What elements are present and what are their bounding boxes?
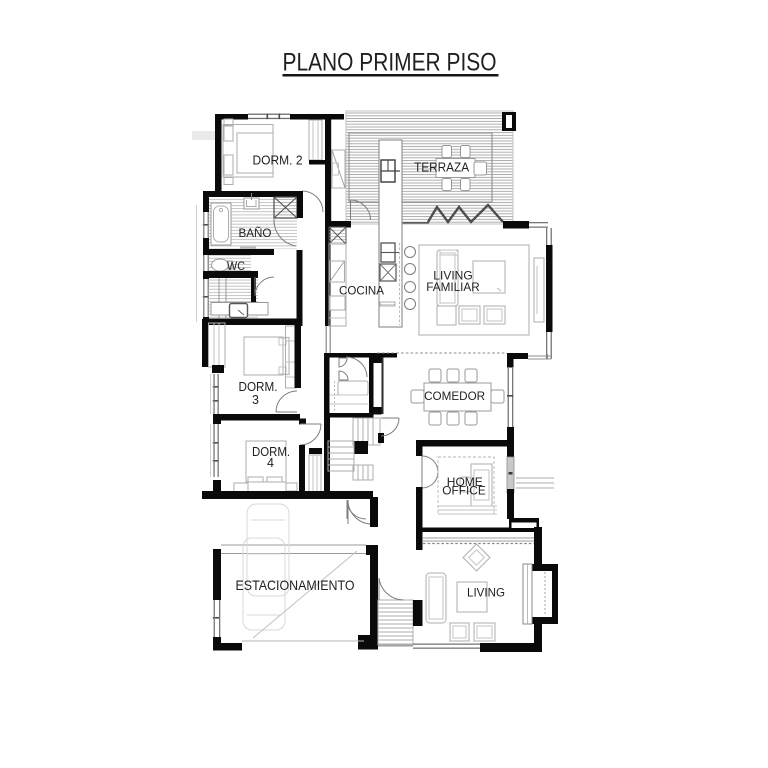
svg-text:FAMILIAR: FAMILIAR [426, 280, 480, 294]
svg-text:TERRAZA: TERRAZA [414, 161, 469, 175]
svg-text:DORM. 2: DORM. 2 [253, 153, 303, 168]
svg-text:3: 3 [252, 393, 259, 407]
svg-text:4: 4 [267, 456, 274, 470]
svg-text:COCINA: COCINA [339, 284, 384, 298]
svg-text:PLANO PRIMER PISO: PLANO PRIMER PISO [283, 49, 497, 77]
svg-text:DORM.: DORM. [239, 380, 278, 394]
svg-text:WC: WC [227, 261, 245, 273]
svg-text:LIVING: LIVING [467, 585, 505, 599]
svg-text:ESTACIONAMIENTO: ESTACIONAMIENTO [236, 577, 355, 593]
svg-text:COMEDOR: COMEDOR [424, 389, 485, 403]
svg-text:OFFICE: OFFICE [442, 484, 486, 498]
svg-text:BAÑO: BAÑO [239, 226, 272, 240]
